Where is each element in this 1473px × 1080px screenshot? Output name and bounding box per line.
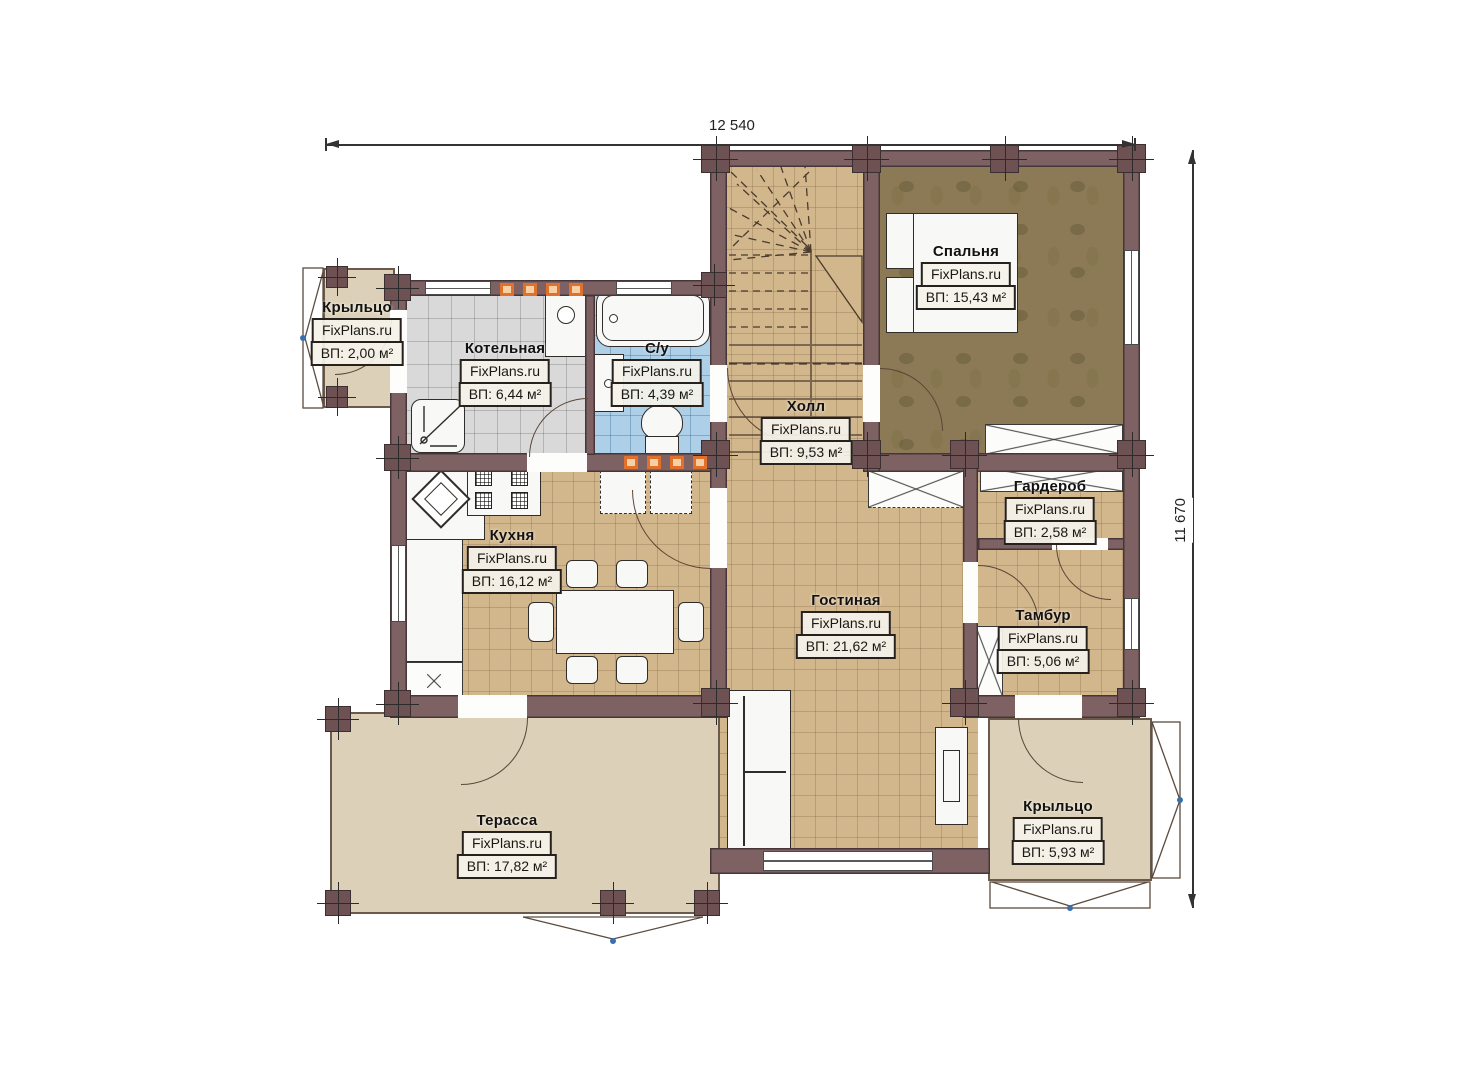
porch-column (326, 386, 348, 408)
terrace-column (325, 706, 351, 732)
chair (678, 602, 704, 642)
room-name: Гостиная (811, 592, 880, 609)
radiator-vent (523, 283, 537, 296)
dimension-label-top: 12 540 (705, 117, 759, 134)
wall (710, 150, 727, 472)
door-opening (963, 562, 978, 623)
chair (566, 560, 598, 588)
room-label-porch-tl: Крыльцо FixPlans.ru ВП: 2,00 м² (311, 299, 404, 366)
room-area: ВП: 2,58 м² (1004, 520, 1097, 545)
dimension-arrow (326, 140, 339, 148)
pier (384, 690, 411, 717)
watermark: FixPlans.ru (462, 831, 552, 856)
room-area: ВП: 4,39 м² (611, 382, 704, 407)
door-opening (863, 365, 880, 422)
floor-plan: Крыльцо FixPlans.ru ВП: 2,00 м² Котельна… (0, 0, 1473, 1080)
room-name: Котельная (465, 340, 545, 357)
pier (852, 440, 881, 469)
watermark: FixPlans.ru (612, 359, 702, 384)
terrace-column (325, 890, 351, 916)
radiator-vent (693, 456, 707, 469)
pier (950, 688, 979, 717)
room-area: ВП: 16,12 м² (462, 569, 562, 594)
wall (863, 453, 1140, 472)
dimension-line-top (325, 144, 1135, 146)
pier (1117, 440, 1146, 469)
chair (528, 602, 554, 642)
chair (616, 560, 648, 588)
room-name: С/у (645, 340, 669, 357)
window (1124, 250, 1139, 345)
dimension-arrow (1188, 151, 1196, 164)
dimension-label-right: 11 670 (1168, 498, 1193, 543)
wall (390, 695, 720, 718)
pier (384, 444, 411, 471)
radiator-vent (647, 456, 661, 469)
bathtub (596, 289, 710, 347)
pier (1117, 144, 1146, 173)
bedroom-wardrobe (985, 424, 1123, 455)
room-name: Кухня (490, 527, 535, 544)
nightstand (886, 213, 914, 269)
room-name: Крыльцо (1023, 798, 1093, 815)
room-name: Холл (787, 398, 825, 415)
pier (1117, 688, 1146, 717)
pier (852, 144, 881, 173)
room-label-kitchen: Кухня FixPlans.ru ВП: 16,12 м² (462, 527, 562, 594)
room-label-tambur: Тамбур FixPlans.ru ВП: 5,06 м² (997, 607, 1090, 674)
room-name: Крыльцо (322, 299, 392, 316)
porch-column (326, 266, 348, 288)
pier (701, 688, 730, 717)
watermark: FixPlans.ru (998, 626, 1088, 651)
wall (710, 150, 1140, 167)
radiator-vent (546, 283, 560, 296)
window (425, 281, 491, 295)
dishwasher (405, 662, 463, 698)
room-area: ВП: 17,82 м² (457, 854, 557, 879)
room-name: Спальня (933, 243, 999, 260)
pier (384, 274, 411, 301)
dimension-arrow (1188, 894, 1196, 907)
room-label-bathroom: С/у FixPlans.ru ВП: 4,39 м² (611, 340, 704, 407)
room-label-garderob: Гардероб FixPlans.ru ВП: 2,58 м² (1004, 478, 1097, 545)
pier (701, 144, 730, 173)
toilet-tank (645, 436, 679, 454)
room-area: ВП: 2,00 м² (311, 341, 404, 366)
radiator-vent (624, 456, 638, 469)
dimension-arrow (1122, 140, 1135, 148)
room-area: ВП: 6,44 м² (459, 382, 552, 407)
dining-table (556, 590, 674, 654)
door-opening (458, 695, 527, 718)
door-opening (1015, 695, 1082, 718)
room-area: ВП: 9,53 м² (760, 440, 853, 465)
chair (616, 656, 648, 684)
tv-stand (935, 727, 968, 825)
room-label-porch-br: Крыльцо FixPlans.ru ВП: 5,93 м² (1012, 798, 1105, 865)
room-label-boiler: Котельная FixPlans.ru ВП: 6,44 м² (459, 340, 552, 407)
pier (950, 440, 979, 469)
door-opening (710, 365, 727, 422)
watermark: FixPlans.ru (1005, 497, 1095, 522)
room-label-hall: Холл FixPlans.ru ВП: 9,53 м² (760, 398, 853, 465)
room-area: ВП: 5,06 м² (997, 649, 1090, 674)
terrace-column (694, 890, 720, 916)
wall (863, 150, 880, 472)
room-area: ВП: 5,93 м² (1012, 840, 1105, 865)
room-name: Терасса (477, 812, 538, 829)
room-area: ВП: 15,43 м² (916, 285, 1016, 310)
sofa (727, 690, 791, 852)
hall-closet (868, 470, 964, 508)
radiator-vent (670, 456, 684, 469)
chair (566, 656, 598, 684)
watermark: FixPlans.ru (761, 417, 851, 442)
watermark: FixPlans.ru (801, 611, 891, 636)
window (1124, 598, 1139, 650)
watermark: FixPlans.ru (1013, 817, 1103, 842)
shower-tray (411, 399, 465, 453)
window (616, 281, 672, 295)
room-label-bedroom: Спальня FixPlans.ru ВП: 15,43 м² (916, 243, 1016, 310)
radiator-vent (500, 283, 514, 296)
watermark: FixPlans.ru (460, 359, 550, 384)
door-opening (710, 488, 727, 568)
room-label-terrace: Терасса FixPlans.ru ВП: 17,82 м² (457, 812, 557, 879)
window (763, 851, 933, 871)
nightstand (886, 277, 914, 333)
terrace-column (600, 890, 626, 916)
room-area: ВП: 21,62 м² (796, 634, 896, 659)
room-name: Гардероб (1014, 478, 1087, 495)
watermark: FixPlans.ru (467, 546, 557, 571)
toilet (641, 404, 683, 440)
pier (701, 272, 727, 298)
window (391, 545, 406, 622)
room-name: Тамбур (1015, 607, 1071, 624)
watermark: FixPlans.ru (921, 262, 1011, 287)
watermark: FixPlans.ru (312, 318, 402, 343)
radiator-vent (569, 283, 583, 296)
pier (990, 144, 1019, 173)
room-label-living: Гостиная FixPlans.ru ВП: 21,62 м² (796, 592, 896, 659)
